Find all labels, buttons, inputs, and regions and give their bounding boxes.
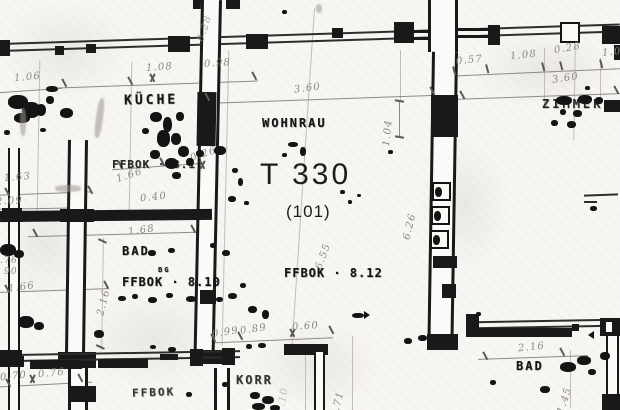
ink-smudge <box>34 322 44 330</box>
dim-bottomleft-a: 0.70 <box>0 370 28 384</box>
wall-segment <box>160 354 178 360</box>
window-line <box>468 319 620 324</box>
unit-label: T 330 <box>260 158 351 192</box>
ink-smudge <box>540 386 550 393</box>
wall-slot <box>606 322 612 332</box>
ink-smudge <box>166 293 173 298</box>
ink-smudge <box>210 243 216 248</box>
ink-smudge <box>176 112 184 121</box>
dim-bottomright: 2.16 <box>517 341 545 355</box>
ink-smudge <box>148 297 157 303</box>
ink-smudge <box>590 206 597 211</box>
ink-smudge <box>165 158 178 169</box>
ink-smudge <box>577 356 591 365</box>
wall-pillar <box>560 22 580 43</box>
wall-segment <box>246 34 268 49</box>
wall-cap <box>488 25 500 45</box>
ink-smudge <box>567 121 576 128</box>
ink-smudge <box>250 392 260 399</box>
ink-smudge <box>248 306 257 313</box>
ink-smudge <box>476 312 481 316</box>
ink-smudge <box>94 330 104 338</box>
wall-segment <box>197 92 217 146</box>
ink-smudge <box>232 168 238 173</box>
ink-smudge <box>4 130 10 135</box>
note-bg: BG <box>158 266 170 274</box>
dim-wall-vertical: 1.04 <box>381 119 395 147</box>
wall-segment <box>86 44 96 53</box>
ink-smudge <box>258 343 266 348</box>
unit-number: (101) <box>286 202 331 222</box>
ink-smudge <box>352 313 364 318</box>
ink-smudge <box>551 120 558 126</box>
dim-bottom-b: 0.89 <box>239 322 267 337</box>
dim-left-mid: 1.63 <box>4 171 32 184</box>
ink-smudge <box>246 344 252 349</box>
wall-corridor <box>314 352 325 410</box>
ink-smudge <box>178 146 189 157</box>
dim-kitchen-a: 1.08 <box>146 61 174 74</box>
dim-wall-depth: 6.26 <box>401 212 418 241</box>
ink-smudge <box>588 369 596 375</box>
ink-smudge <box>36 104 46 116</box>
ink-smudge <box>118 296 126 301</box>
floorplan-scan: 1.06 1.08 0.98 3.60 0.57 1.08 0.28 1.0 3… <box>0 0 620 410</box>
dim-small: 0.40 <box>139 191 167 205</box>
wall-cap <box>226 0 240 9</box>
ink-smudge <box>404 338 412 344</box>
room-label-bath-left: BAD <box>122 244 150 258</box>
ink-smudge <box>150 150 160 159</box>
wall-segment <box>214 368 230 410</box>
arrow-icon <box>584 331 594 339</box>
dim-edge-frag-b: 90 <box>4 267 18 277</box>
shaft-scribble <box>435 187 442 197</box>
ink-smudge <box>186 158 194 166</box>
ink-smudge <box>132 294 138 299</box>
interior-wall <box>0 209 212 222</box>
ink-smudge <box>150 345 156 349</box>
ink-smudge <box>340 190 345 194</box>
ink-smudge <box>573 110 582 117</box>
level-label-living: FFBOK · 8.12 <box>284 266 383 280</box>
dim-bottom-a: 0.99 <box>211 325 239 340</box>
ink-smudge <box>214 146 226 155</box>
ink-smudge <box>252 403 265 410</box>
ink-smudge <box>270 405 280 410</box>
pencil-smear <box>20 108 26 136</box>
wall-segment <box>458 35 490 38</box>
wall-segment <box>0 356 24 367</box>
ink-smudge <box>300 147 306 156</box>
wall-segment <box>602 26 620 44</box>
dim-bottom-c: 0.60 <box>292 320 320 333</box>
ink-smudge <box>244 201 249 205</box>
level-label-kitchen: FFBOK · 8.1 <box>112 158 196 171</box>
ink-smudge <box>168 248 175 253</box>
ink-smudge <box>560 362 576 372</box>
ink-smudge <box>388 150 393 154</box>
ink-smudge <box>216 297 223 302</box>
ink-smudge <box>228 293 237 299</box>
level-label-bath: FFBOK · 8.10 <box>122 275 221 289</box>
ink-smudge <box>148 250 156 256</box>
wall-cap <box>427 334 458 350</box>
pencil-smear <box>316 4 322 13</box>
dim-bath-width: 1.68 <box>127 223 155 238</box>
ink-blot <box>70 386 96 402</box>
arrow-icon <box>364 311 374 319</box>
wall-segment <box>604 100 620 112</box>
ink-smudge <box>150 112 162 122</box>
dim-left-edge: 2.09 <box>0 195 23 208</box>
wall-mark <box>584 201 597 203</box>
ink-smudge <box>595 97 603 104</box>
ink-smudge <box>228 196 236 202</box>
wall-segment <box>332 28 343 38</box>
ink-smudge <box>172 172 181 179</box>
ink-smudge <box>142 128 149 134</box>
ink-smudge <box>560 109 566 115</box>
ink-blot <box>602 394 620 410</box>
wall-segment <box>478 328 572 337</box>
room-label-kitchen: KÜCHE <box>124 93 178 109</box>
ink-smudge <box>288 142 298 147</box>
dim-right-d: 1.0 <box>601 46 620 59</box>
wall-segment <box>433 256 457 268</box>
dim-tick <box>252 71 258 80</box>
ink-smudge <box>40 128 46 132</box>
wall-segment <box>431 95 458 137</box>
dim-bottomleft-b: 0.76 <box>37 367 65 381</box>
construction-line <box>352 336 353 410</box>
dim-kitchen-b: 0.98 <box>204 57 232 70</box>
dim-tick <box>88 185 94 194</box>
wall-bath-left <box>65 140 88 362</box>
wall-segment <box>168 36 190 52</box>
ink-smudge <box>348 200 352 204</box>
wall-segment <box>442 284 456 298</box>
dim-bottomright-v: 1.45 <box>556 386 575 410</box>
ink-smudge <box>262 396 274 404</box>
wall-segment <box>458 28 490 31</box>
ink-smudge <box>186 296 196 302</box>
pencil-smear <box>55 185 81 192</box>
ink-smudge <box>282 10 287 14</box>
ink-smudge <box>46 96 54 104</box>
ink-smudge <box>168 347 176 352</box>
shaft-scribble <box>434 211 441 221</box>
room-label-corridor: KORR <box>236 373 273 387</box>
ink-smudge <box>585 86 590 90</box>
pencil-smear <box>93 98 105 139</box>
wall-segment <box>98 359 148 368</box>
ink-smudge <box>171 133 181 145</box>
wall-segment <box>222 348 235 365</box>
ink-smudge <box>357 194 361 197</box>
ink-smudge <box>222 382 228 387</box>
ink-smudge <box>578 95 592 104</box>
room-label-living: WOHNRAU <box>262 116 327 130</box>
ink-smudge <box>18 316 34 328</box>
ink-smudge <box>262 310 269 319</box>
ink-smudge <box>556 96 572 105</box>
wall-segment <box>0 40 10 56</box>
wall-segment <box>55 46 64 55</box>
wall-segment <box>190 349 203 366</box>
dimension-line <box>399 100 400 138</box>
dim-living-width: 3.60 <box>293 81 321 95</box>
construction-line <box>400 50 401 100</box>
ink-smudge <box>490 380 496 385</box>
ink-smudge <box>238 178 243 186</box>
wall-cross-top <box>428 0 458 52</box>
construction-line <box>305 346 306 410</box>
ink-smudge <box>282 153 287 157</box>
ink-smudge <box>196 150 204 157</box>
level-label-corridor: FFBOK <box>132 385 176 399</box>
ink-smudge <box>60 108 73 118</box>
ink-smudge <box>240 283 246 288</box>
ink-smudge <box>186 392 192 397</box>
room-label-bath-right: BAD <box>516 359 544 373</box>
wall-mark <box>584 193 618 196</box>
wall-segment <box>200 290 216 304</box>
shaft-scribble <box>433 235 440 245</box>
ink-smudge <box>600 352 610 360</box>
wall-pillar <box>394 22 414 43</box>
ink-smudge <box>222 250 230 256</box>
ink-smudge <box>157 130 170 147</box>
wall-segment <box>572 324 579 331</box>
ink-smudge <box>14 250 24 258</box>
ink-smudge <box>46 86 58 92</box>
ink-smudge <box>418 335 427 341</box>
dim-tick <box>560 347 566 356</box>
